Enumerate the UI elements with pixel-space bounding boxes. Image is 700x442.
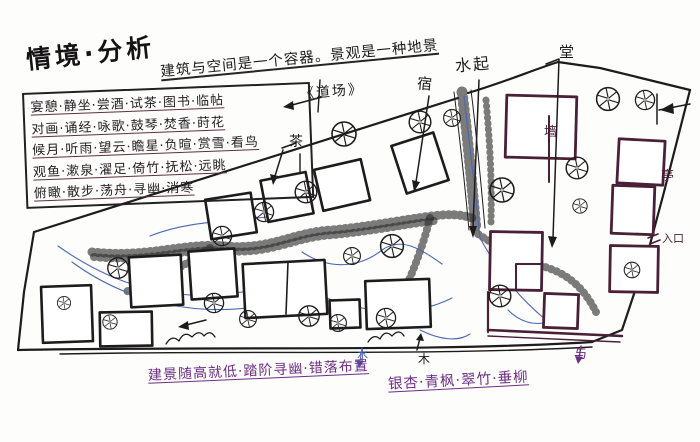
activity-table: 宴憩·静坐·尝酒·试茶·图书·临帖 对画·诵经·咏歌·鼓琴·焚香·莳花 候月·听… [22, 82, 314, 209]
label-corner-mark: 与 [574, 348, 587, 362]
label-hall: 堂 [559, 44, 574, 61]
label-lodge: 宿 [416, 75, 432, 93]
label-wood: 木 [418, 353, 430, 366]
label-water-start: 水起 [454, 54, 491, 75]
label-tea: 茶 [289, 135, 303, 150]
buildings-right [488, 95, 665, 342]
hand-drawn-site-plan: 情境·分析 建筑与空间是一个容器。景观是一种地景 《道场》 宴憩·静坐·尝酒·试… [0, 0, 700, 442]
bush-scallops [166, 332, 404, 344]
label-pavilion: 亭 [661, 170, 674, 184]
label-entrance: 入口 [662, 233, 684, 245]
label-wall: 墙 [544, 126, 557, 140]
